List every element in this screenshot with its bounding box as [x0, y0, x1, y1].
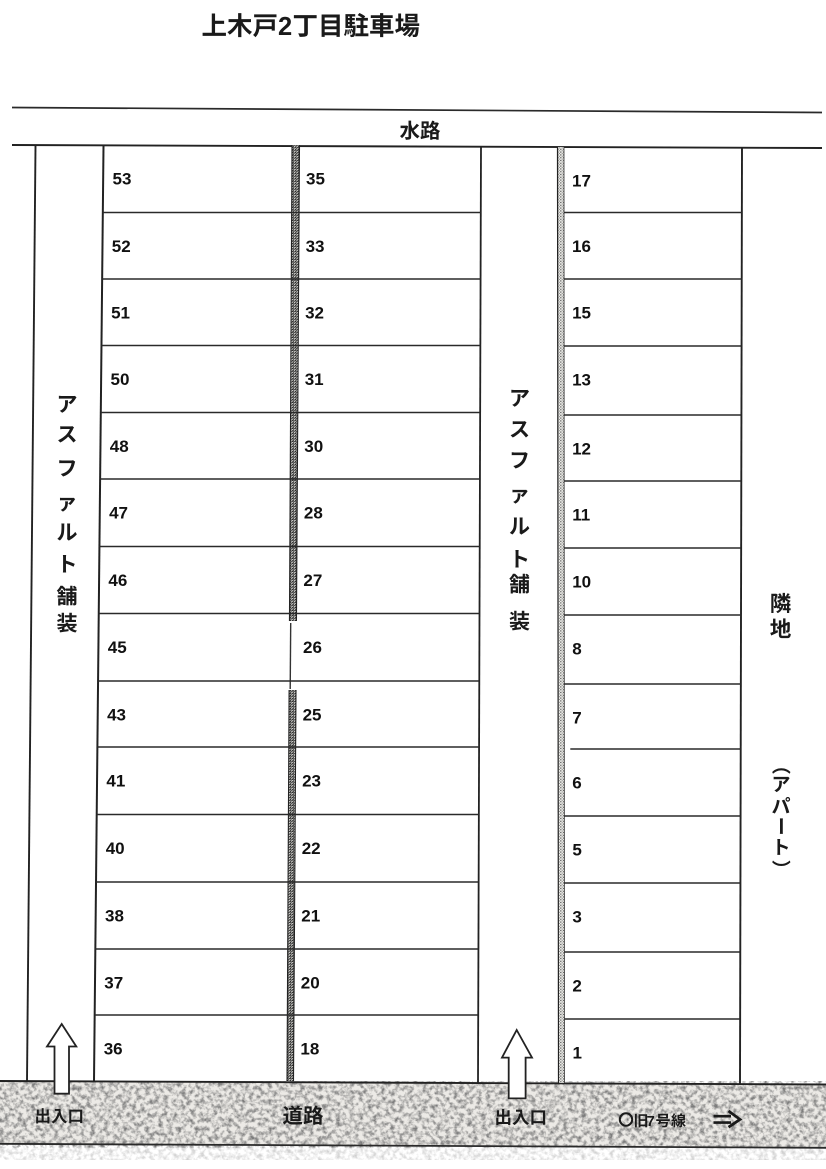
svg-text:2: 2	[572, 977, 581, 996]
svg-text:53: 53	[113, 170, 132, 189]
svg-text:15: 15	[572, 304, 591, 323]
svg-text:26: 26	[303, 638, 322, 657]
svg-text:8: 8	[572, 640, 581, 659]
svg-text:11: 11	[572, 506, 590, 525]
svg-text:1: 1	[573, 1044, 582, 1063]
svg-text:37: 37	[104, 974, 123, 993]
svg-text:47: 47	[109, 504, 128, 523]
svg-text:10: 10	[572, 573, 591, 592]
svg-text:41: 41	[106, 772, 125, 791]
svg-text:7: 7	[572, 709, 581, 728]
svg-text:33: 33	[306, 237, 325, 256]
svg-text:36: 36	[104, 1040, 123, 1059]
svg-text:13: 13	[572, 371, 591, 390]
svg-text:50: 50	[111, 370, 130, 389]
svg-text:18: 18	[300, 1040, 319, 1059]
svg-text:51: 51	[111, 304, 130, 323]
svg-text:6: 6	[572, 774, 581, 793]
svg-text:22: 22	[302, 839, 321, 858]
svg-text:52: 52	[112, 237, 131, 256]
svg-text:45: 45	[108, 638, 127, 657]
svg-text:43: 43	[107, 706, 126, 725]
svg-text:25: 25	[303, 706, 322, 725]
svg-text:30: 30	[304, 437, 323, 456]
svg-text:27: 27	[303, 571, 322, 590]
svg-text:12: 12	[572, 440, 591, 459]
svg-text:40: 40	[106, 839, 125, 858]
svg-text:2: 2	[278, 13, 292, 41]
svg-text:21: 21	[301, 907, 320, 926]
svg-text:46: 46	[108, 571, 127, 590]
svg-text:48: 48	[110, 437, 129, 456]
svg-text:23: 23	[302, 772, 321, 791]
svg-text:5: 5	[572, 841, 581, 860]
svg-text:28: 28	[304, 504, 323, 523]
svg-text:38: 38	[105, 907, 124, 926]
svg-text:32: 32	[305, 304, 324, 323]
svg-text:3: 3	[572, 908, 581, 927]
svg-text:31: 31	[305, 370, 324, 389]
svg-text:7: 7	[647, 1113, 655, 1130]
svg-text:17: 17	[572, 172, 591, 191]
svg-text:35: 35	[306, 170, 325, 189]
svg-text:20: 20	[301, 974, 320, 993]
svg-text:16: 16	[572, 237, 591, 256]
